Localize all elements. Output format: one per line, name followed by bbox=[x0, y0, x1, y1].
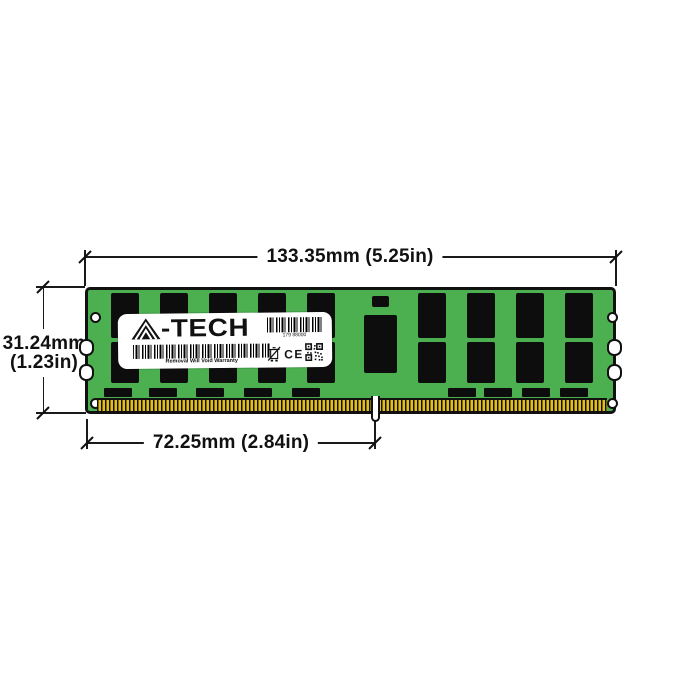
memory-chip bbox=[516, 342, 544, 383]
qr-code-icon bbox=[305, 343, 323, 361]
a-tech-triangle-icon bbox=[131, 318, 161, 340]
height-dimension-label: 31.24mm (1.23in) bbox=[1, 329, 88, 377]
key-notch bbox=[371, 396, 380, 422]
side-notch bbox=[607, 364, 622, 381]
component-bar bbox=[484, 388, 512, 397]
register-chip-small bbox=[372, 296, 389, 307]
memory-chip bbox=[418, 293, 446, 338]
component-bar bbox=[448, 388, 476, 397]
weee-bin-icon bbox=[267, 345, 281, 362]
memory-chip bbox=[467, 293, 495, 338]
component-bar bbox=[196, 388, 224, 397]
register-chip-large bbox=[364, 315, 397, 373]
memory-chip bbox=[467, 342, 495, 383]
component-bar bbox=[292, 388, 320, 397]
serial-barcode bbox=[267, 317, 322, 333]
main-barcode bbox=[133, 344, 270, 359]
width-dimension-label: 133.35mm (5.25in) bbox=[257, 245, 442, 269]
mounting-hole bbox=[607, 398, 618, 409]
component-bar bbox=[522, 388, 550, 397]
brand-logo: -TECH bbox=[131, 317, 240, 340]
notch-dimension-label: 72.25mm (2.84in) bbox=[144, 431, 318, 455]
warranty-text: Removal Will Void Warranty bbox=[133, 358, 270, 365]
component-bar bbox=[560, 388, 588, 397]
memory-chip bbox=[418, 342, 446, 383]
memory-module-pcb: -TECH 179 88000 Removal Will Void Warran… bbox=[85, 287, 616, 414]
mounting-hole bbox=[607, 312, 618, 323]
diagram-canvas: 133.35mm (5.25in) 31.24mm (1.23in) 72.25… bbox=[0, 0, 700, 700]
memory-chip bbox=[565, 293, 593, 338]
brand-logo-text: -TECH bbox=[161, 318, 250, 340]
serial-number: 179 88000 bbox=[267, 332, 322, 339]
side-notch bbox=[79, 364, 94, 381]
side-notch bbox=[79, 339, 94, 356]
component-bar bbox=[104, 388, 132, 397]
edge-connector-pins bbox=[97, 398, 607, 411]
component-bar bbox=[244, 388, 272, 397]
height-dimension-in: (1.23in) bbox=[3, 353, 86, 372]
component-bar bbox=[149, 388, 177, 397]
ce-mark: CE bbox=[284, 347, 304, 361]
mounting-hole bbox=[90, 312, 101, 323]
product-label-sticker: -TECH 179 88000 Removal Will Void Warran… bbox=[118, 312, 333, 369]
height-dimension-mm: 31.24mm bbox=[3, 334, 86, 353]
memory-chip bbox=[565, 342, 593, 383]
side-notch bbox=[607, 339, 622, 356]
memory-chip bbox=[516, 293, 544, 338]
